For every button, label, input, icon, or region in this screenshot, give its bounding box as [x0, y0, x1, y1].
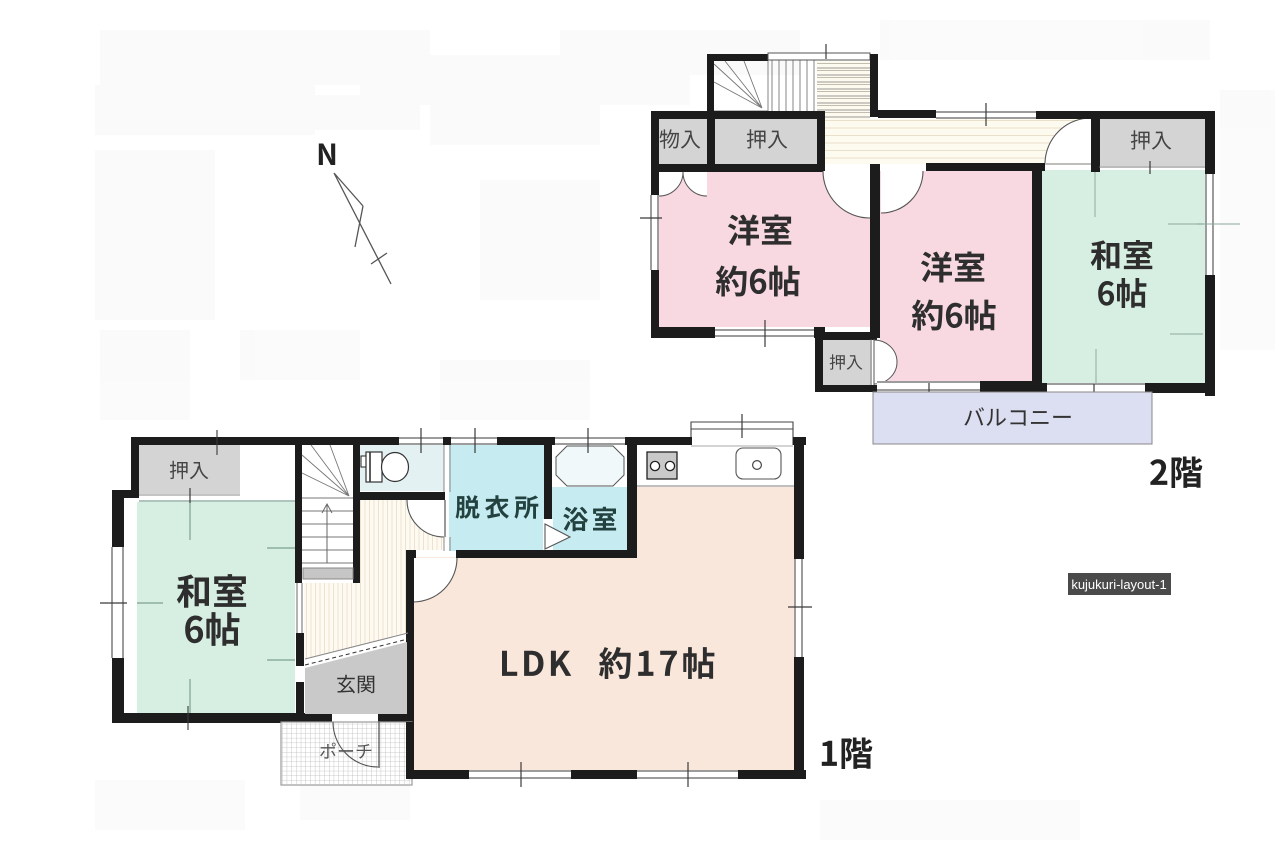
- svg-text:kujukuri-layout-1: kujukuri-layout-1: [1071, 577, 1166, 592]
